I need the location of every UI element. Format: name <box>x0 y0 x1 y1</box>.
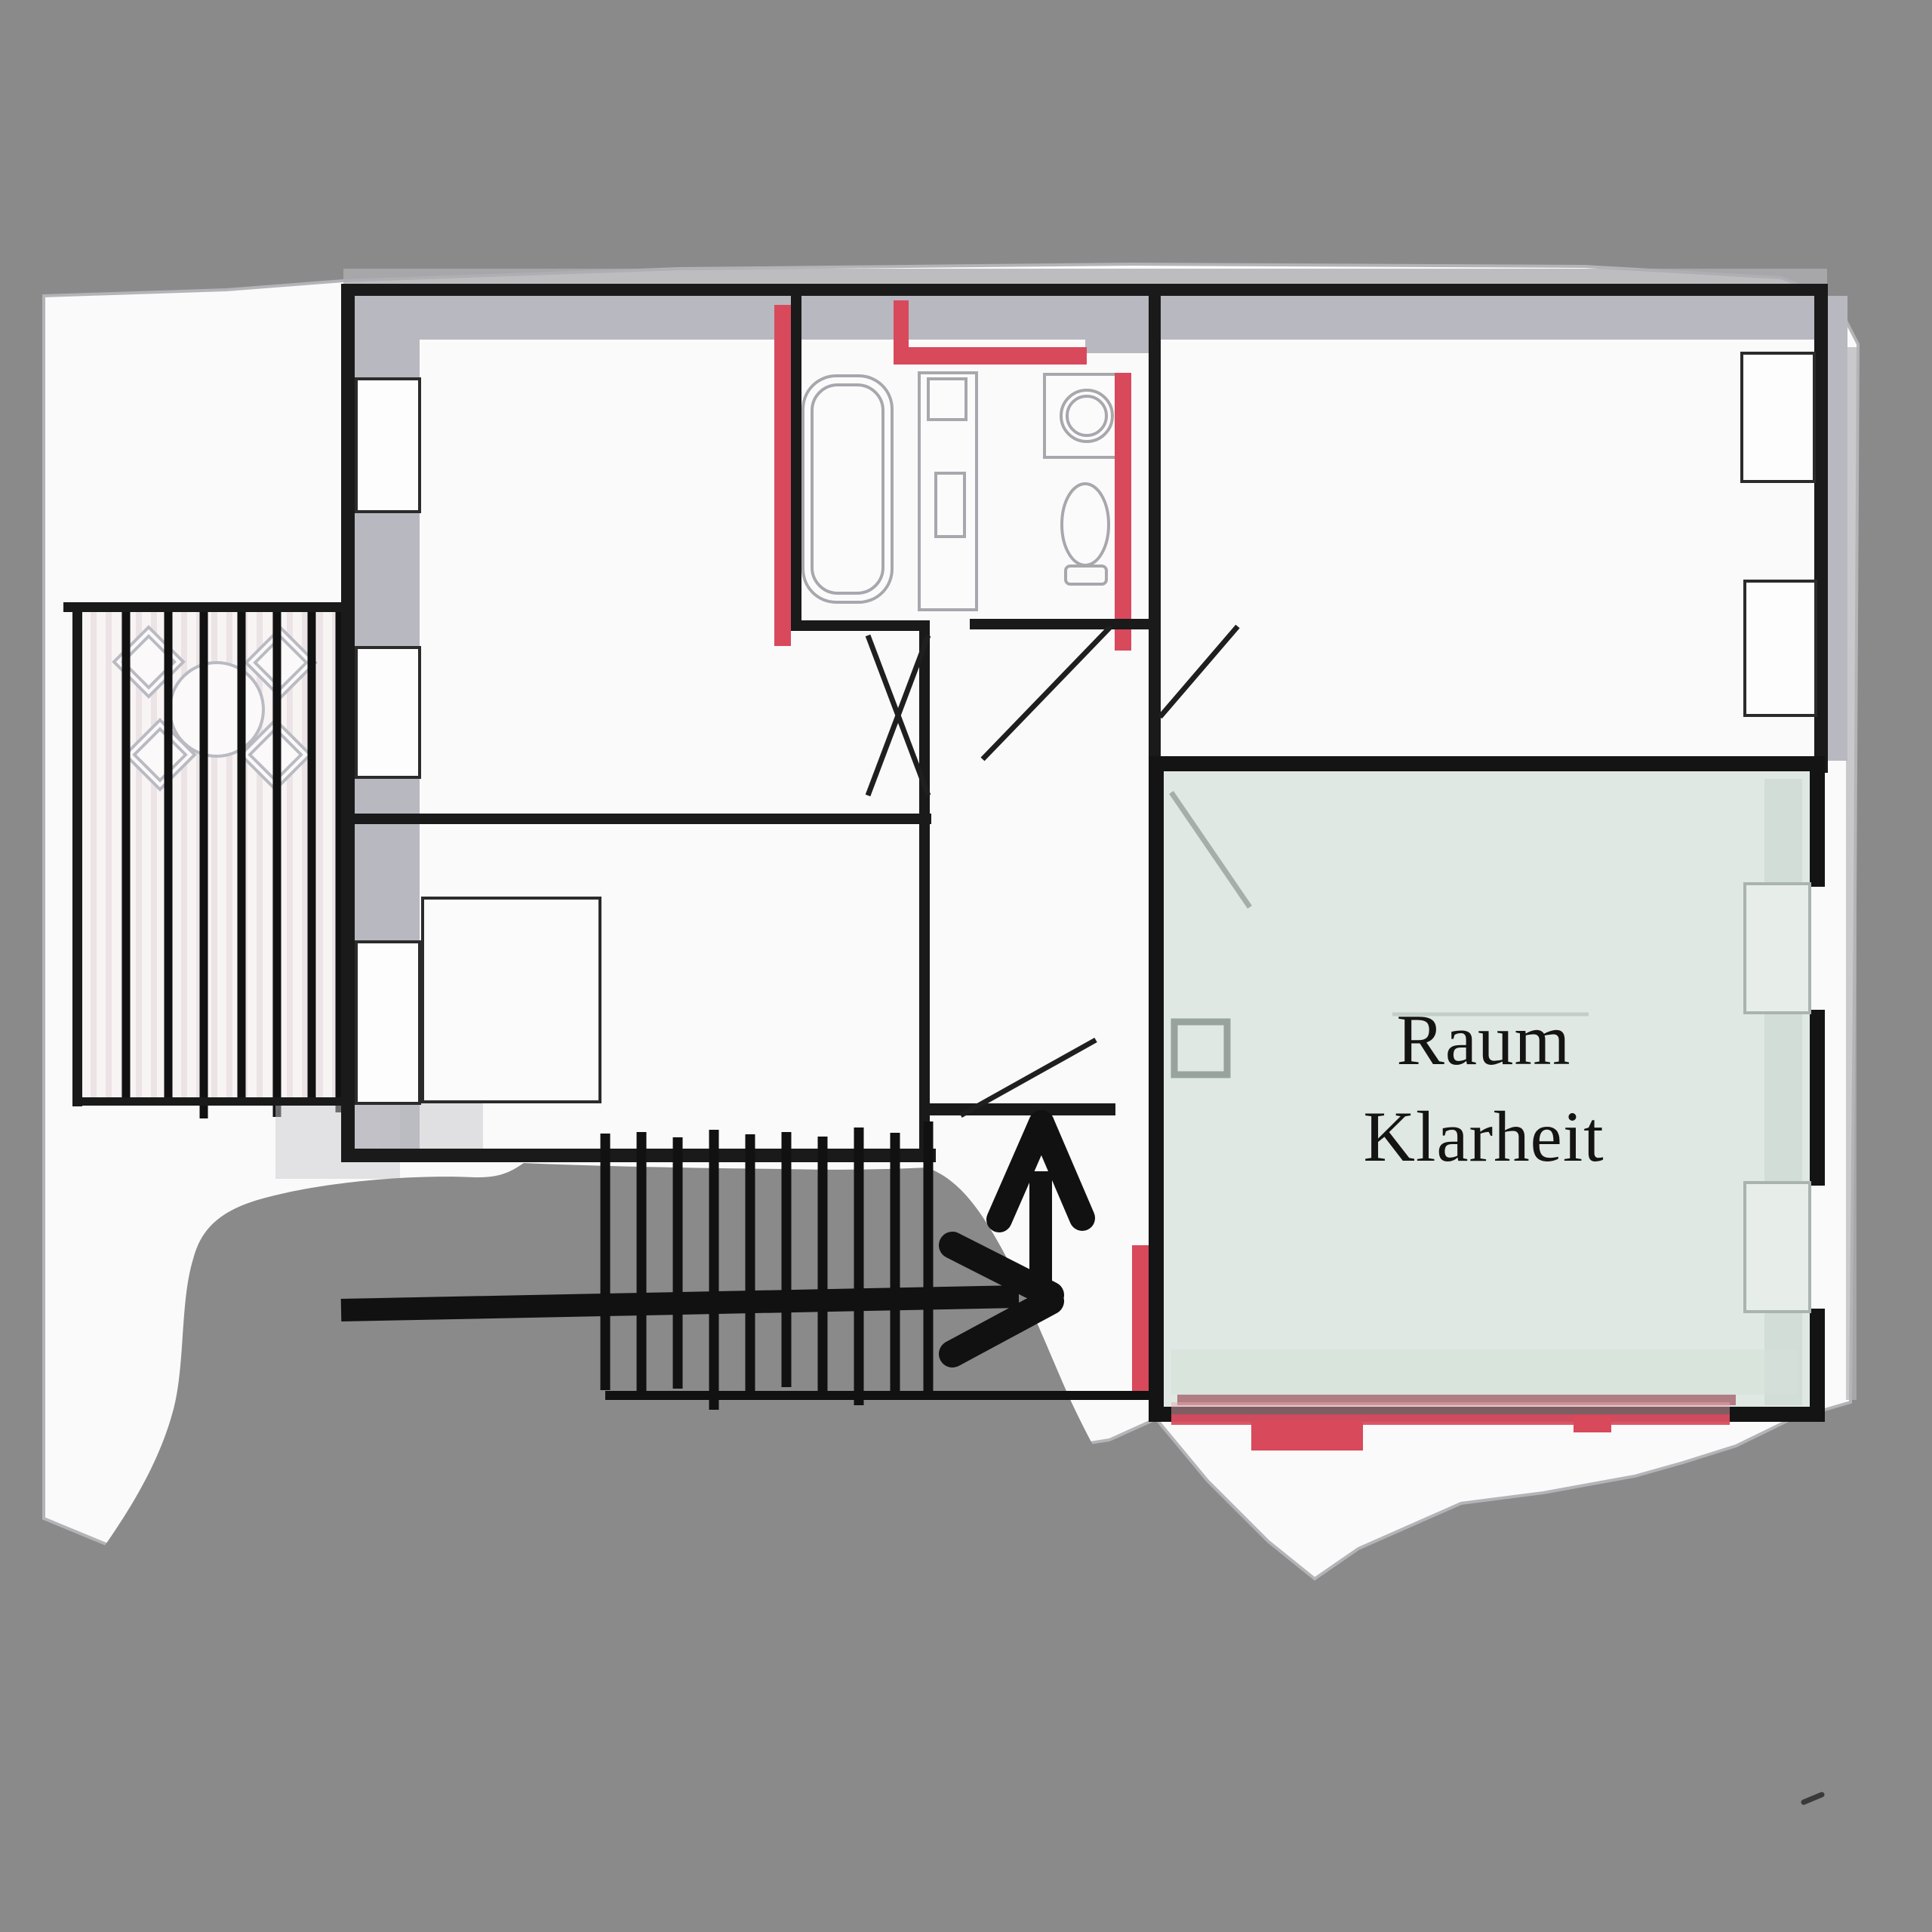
window-right-2 <box>1745 581 1816 715</box>
wall-room-divider <box>341 814 931 824</box>
lower-room-furniture <box>423 898 600 1102</box>
green-room-window-1 <box>1745 884 1810 1013</box>
room-klarheit: Raum Klarheit <box>1156 764 1828 1414</box>
wall-hall-bottom <box>919 1103 1115 1115</box>
wall-bath-bottom-b <box>970 619 1159 629</box>
window-left-3 <box>356 942 420 1103</box>
balcony-table <box>170 663 263 756</box>
page-edge-right <box>1846 347 1857 1400</box>
wall-left <box>341 284 355 1162</box>
wall-balcony-left <box>72 602 82 1106</box>
wall-balcony-bottom <box>75 1097 349 1106</box>
floorplan-scan: Raum Klarheit <box>0 0 1932 1932</box>
wall-hall-left <box>919 620 930 1162</box>
window-right-1 <box>1742 353 1814 481</box>
wall-bath-left <box>791 284 801 631</box>
bathtub <box>803 376 892 602</box>
window-left-2 <box>356 648 420 777</box>
window-left-1 <box>356 379 420 512</box>
toilet <box>1062 484 1109 565</box>
wall-top <box>341 284 1826 296</box>
wall-balcony-top <box>63 602 349 612</box>
balcony <box>82 610 343 1118</box>
floorplan-svg: Raum Klarheit <box>0 0 1932 1932</box>
wall-bath-bottom-a <box>791 620 919 631</box>
wall-bath-right <box>1149 284 1161 773</box>
room-label-line1: Raum <box>1397 1000 1571 1080</box>
green-room-window-2 <box>1745 1183 1810 1312</box>
room-klarheit-area <box>1156 764 1817 1414</box>
room-label-line2: Klarheit <box>1363 1097 1604 1177</box>
arrow-horizontal-shaft <box>341 1297 1019 1310</box>
